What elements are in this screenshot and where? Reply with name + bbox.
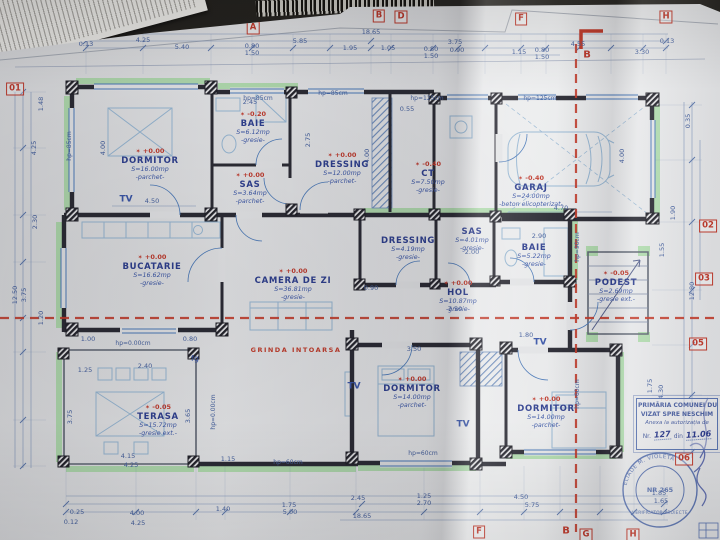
room-area: S=15.72mp [137, 422, 179, 430]
room-label-dormitor: ✶ +0.00DORMITORS=14.00mp-parchet- [383, 376, 441, 409]
room-area: S=5.22mp [517, 253, 550, 261]
room-finish: -gresie- [439, 305, 476, 313]
dimension-label: 5.75 [525, 502, 539, 509]
axis-marker-01: 01 [6, 83, 24, 96]
dimension-label: 1.85 [652, 490, 666, 497]
room-level: ✶ +0.00 [315, 152, 369, 160]
room-name: HOL [439, 288, 476, 298]
level-mark-icon: ✶ [398, 376, 403, 383]
dimension-label: 4.00 [130, 510, 144, 517]
dimension-label: 1.05 [381, 45, 395, 52]
axis-marker-g: G [580, 529, 593, 540]
dimension-label: 0.55 [400, 106, 414, 113]
window-sill-height-label: hp=60cm [273, 460, 302, 466]
dimension-label: 1.48 [38, 97, 45, 111]
stamp-din-label: din [674, 433, 683, 440]
room-area: S=16.62mp [122, 272, 181, 280]
dimension-label: 1.50 [535, 54, 549, 61]
dimension-label: 4.25 [136, 37, 150, 44]
dimension-label: 18.65 [353, 513, 372, 520]
room-finish: -parchet- [383, 401, 441, 409]
room-area: S=3.64mp [233, 190, 266, 198]
dimension-label: 18.65 [362, 29, 381, 36]
room-finish: -gresie- [411, 186, 444, 194]
room-level: ✶ +0.00 [255, 268, 332, 276]
window-sill-height-label: hp=60cm [408, 451, 437, 457]
room-name: DORMITOR [121, 156, 179, 166]
room-finish: -gresie- [122, 279, 181, 287]
room-label-bucatarie: ✶ +0.00BUCATARIES=16.62mp-gresie- [122, 254, 181, 287]
room-finish: -gresie- [381, 254, 435, 262]
dimension-label: 2.90 [532, 233, 546, 240]
room-name: BAIE [517, 243, 550, 253]
room-area: S=16.00mp [121, 166, 179, 174]
tv-label: TV [456, 421, 469, 430]
level-mark-icon: ✶ [138, 254, 143, 261]
room-finish: -parchet- [233, 197, 266, 205]
axis-marker-h: H [659, 11, 672, 24]
room-name: DRESSING [381, 236, 435, 246]
room-level: ✶ -0.40 [411, 161, 444, 169]
dimension-label: 4.50 [145, 198, 159, 205]
stamp-date-value: 11.06 [686, 429, 712, 441]
level-mark-icon: ✶ [444, 280, 449, 287]
window-sill-height-label: hp=125cm [410, 96, 443, 102]
room-label-ct: ✶ -0.40CTS=7.50mp-gresie- [411, 161, 444, 194]
stamp-nr-label: Nr. [643, 433, 651, 440]
room-area: S=14.00mp [383, 394, 441, 402]
stamp-annex: Anexa la autorizația de [638, 419, 716, 428]
axis-marker-03: 03 [695, 273, 713, 286]
annotation-labels: ✶ +0.00DORMITORS=16.00mp-parchet-✶ -0.20… [0, 0, 720, 540]
room-level: ✶ +0.00 [439, 280, 476, 288]
dimension-label: 0.90 [364, 285, 378, 292]
window-sill-height-label: hp=85cm [67, 131, 73, 160]
window-sill-height-label: hp=85cm [243, 96, 272, 102]
dimension-label: 3.75 [448, 39, 462, 46]
dimension-label: 1.20 [38, 311, 45, 325]
room-finish: -gresie- [236, 136, 269, 144]
dimension-label: 0.13 [660, 38, 674, 45]
dimension-label: 5.85 [293, 38, 307, 45]
axis-marker-02: 02 [699, 220, 717, 233]
dimension-label: 3.65 [185, 409, 192, 423]
room-finish: -gresie ext.- [595, 295, 637, 303]
dimension-label: 3.75 [21, 288, 28, 302]
dimension-label: 1.25 [78, 367, 92, 374]
room-area: S=10.87mp [439, 298, 476, 306]
room-label-dormitor: ✶ +0.00DORMITORS=16.00mp-parchet- [121, 148, 179, 181]
dimension-label: 1.50 [245, 50, 259, 57]
dimension-label: 0.12 [64, 519, 78, 526]
room-area: S=4.19mp [381, 246, 435, 254]
room-label-sas: ✶ +0.00SASS=3.64mp-parchet- [233, 172, 266, 205]
axis-marker-d: D [394, 11, 407, 24]
dimension-label: 4.50 [514, 494, 528, 501]
room-label-baie: ✶ -0.20BAIES=6.12mp-gresie- [236, 111, 269, 144]
room-name: BUCATARIE [122, 262, 181, 272]
dimension-label: 1.55 [659, 243, 666, 257]
approval-stamp-box: PRIMĂRIA COMUNEI DUM VIZAT SPRE NESCHIM … [636, 398, 718, 450]
window-sill-height-label: hp=125cm [523, 96, 556, 102]
dimension-label: 2.75 [305, 133, 312, 147]
dimension-label: 1.15 [221, 456, 235, 463]
dimension-label: 0.25 [70, 509, 84, 516]
room-level: ✶ +0.00 [517, 396, 575, 404]
dimension-label: 5.40 [175, 44, 189, 51]
dimension-label: 4.15 [121, 453, 135, 460]
room-label-hol: ✶ +0.00HOLS=10.87mp-gresie- [439, 280, 476, 313]
room-area: S=24.00mp [499, 193, 563, 201]
room-name: SAS [455, 227, 488, 237]
room-name: DRESSING [315, 160, 369, 170]
room-label-podest: ✶ -0.05PODESTS=2.69mp-gresie ext.- [595, 270, 637, 303]
room-name: TERASA [137, 412, 179, 422]
room-name: DORMITOR [383, 384, 441, 394]
dimension-label: 4.00 [619, 149, 626, 163]
dimension-label: 1.00 [81, 336, 95, 343]
level-mark-icon: ✶ [328, 152, 333, 159]
room-name: SAS [233, 180, 266, 190]
dimension-label: 1.80 [519, 332, 533, 339]
level-mark-icon: ✶ [603, 270, 608, 277]
dimension-label: 4.25 [131, 520, 145, 527]
room-level: ✶ +0.00 [383, 376, 441, 384]
tv-label: TV [119, 196, 132, 205]
room-finish: -gresie ext.- [137, 429, 179, 437]
dimension-label: 4.25 [124, 462, 138, 469]
tv-label: TV [533, 339, 546, 348]
window-sill-height-label: hp=60cm [575, 379, 581, 408]
room-level: ✶ -0.40 [499, 175, 563, 183]
dimension-label: 1.50 [424, 53, 438, 60]
window-sill-height-label: hp=0.00cm [211, 394, 217, 429]
level-mark-icon: ✶ [240, 111, 245, 118]
dimension-label: 2.70 [417, 500, 431, 507]
axis-marker-f: F [473, 526, 485, 539]
room-level: ✶ +0.00 [233, 172, 266, 180]
level-mark-icon: ✶ [518, 175, 523, 182]
fridge-label: fg [191, 355, 199, 363]
room-level: ✶ -0.20 [236, 111, 269, 119]
room-finish: -gresie- [517, 261, 550, 269]
dimension-label: 1.40 [216, 506, 230, 513]
room-level: ✶ +0.00 [122, 254, 181, 262]
room-area: S=7.50mp [411, 179, 444, 187]
level-mark-icon: ✶ [145, 404, 150, 411]
dimension-label: 3.30 [635, 49, 649, 56]
stamp-visa: VIZAT SPRE NESCHIM [638, 410, 716, 419]
room-finish: -parchet- [517, 421, 575, 429]
stamp-authority: PRIMĂRIA COMUNEI DUM [638, 401, 716, 410]
photo-of-floor-plan: ELIADE M. VIOLETA NR 265 VERIFICATOR PRO… [0, 0, 720, 540]
dimension-label: 12.50 [12, 286, 19, 305]
dimension-label: 1.95 [343, 45, 357, 52]
room-level: ✶ -0.05 [137, 404, 179, 412]
dimension-label: 4.00 [100, 141, 107, 155]
level-mark-icon: ✶ [415, 161, 420, 168]
room-area: S=36.81mp [255, 286, 332, 294]
level-mark-icon: ✶ [532, 396, 537, 403]
room-area: S=14.00mp [517, 414, 575, 422]
dimension-label: 0.80 [183, 336, 197, 343]
room-area: S=4.01mp [455, 237, 488, 245]
tv-label: TV [347, 383, 360, 392]
room-name: CAMERA DE ZI [255, 276, 332, 286]
axis-marker-b: B [373, 10, 385, 23]
level-mark-icon: ✶ [279, 268, 284, 275]
room-label-dressing: DRESSINGS=4.19mp-gresie- [381, 236, 435, 261]
dimension-label: 4.25 [31, 141, 38, 155]
room-level: ✶ -0.05 [595, 270, 637, 278]
level-mark-icon: ✶ [236, 172, 241, 179]
dimension-label: 2.45 [351, 495, 365, 502]
axis-marker-f: F [515, 13, 527, 26]
room-label-baie: BAIES=5.22mp-gresie- [517, 243, 550, 268]
room-label-garaj: ✶ -0.40GARAJS=24.00mp-beton elicopteriza… [499, 175, 563, 208]
room-finish: -parchet- [121, 173, 179, 181]
room-name: BAIE [236, 119, 269, 129]
room-level: ✶ +0.00 [121, 148, 179, 156]
dimension-label: 2.30 [32, 215, 39, 229]
section-letter-b: B [562, 526, 570, 537]
axis-marker-06: 06 [675, 453, 693, 466]
dimension-label: 2.40 [138, 363, 152, 370]
room-name: CT [411, 169, 444, 179]
room-name: DORMITOR [517, 404, 575, 414]
room-name: GARAJ [499, 183, 563, 193]
dimension-label: 3.75 [67, 410, 74, 424]
room-area: S=6.12mp [236, 129, 269, 137]
room-area: S=12.00mp [315, 170, 369, 178]
window-sill-height-label: hp=90cm [575, 232, 581, 261]
room-label-terasa: ✶ -0.05TERASAS=15.72mp-gresie ext.- [137, 404, 179, 437]
grinda-intoarsa-note: GRINDA INTOARSA [251, 347, 342, 354]
dimension-label: 1.75 [647, 379, 654, 393]
dimension-label: 5.00 [283, 509, 297, 516]
room-area: S=2.69mp [595, 288, 637, 296]
axis-marker-05: 05 [689, 338, 707, 351]
section-letter-b: B [583, 50, 591, 61]
room-label-dressing: ✶ +0.00DRESSINGS=12.00mp-parchet- [315, 152, 369, 185]
axis-marker-a: A [247, 22, 260, 35]
dimension-label: 1.15 [512, 49, 526, 56]
level-mark-icon: ✶ [136, 148, 141, 155]
room-name: PODEST [595, 278, 637, 288]
room-finish: -parchet- [315, 177, 369, 185]
blueprint-paper: ELIADE M. VIOLETA NR 265 VERIFICATOR PRO… [0, 0, 720, 540]
window-sill-height-label: hp=0.00cm [115, 341, 150, 347]
room-label-dormitor: ✶ +0.00DORMITORS=14.00mp-parchet- [517, 396, 575, 429]
room-label-camera-de-zi: ✶ +0.00CAMERA DE ZIS=36.81mp-gresie- [255, 268, 332, 301]
dimension-label: 3.50 [407, 346, 421, 353]
room-label-sas: SASS=4.01mp-gresie- [455, 227, 488, 252]
axis-marker-h: H [626, 529, 639, 540]
dimension-label: 0.35 [685, 114, 692, 128]
dimension-label: 1.90 [670, 206, 677, 220]
dimension-label: 4.55 [571, 41, 585, 48]
dimension-label: 1.65 [654, 498, 668, 505]
stamp-nr-value: 127 [654, 429, 671, 440]
room-finish: -gresie- [455, 245, 488, 253]
room-finish: -beton elicopterizat- [499, 200, 563, 208]
window-sill-height-label: hp=85cm [318, 91, 347, 97]
dimension-label: 0.90 [450, 47, 464, 54]
room-finish: -gresie- [255, 293, 332, 301]
